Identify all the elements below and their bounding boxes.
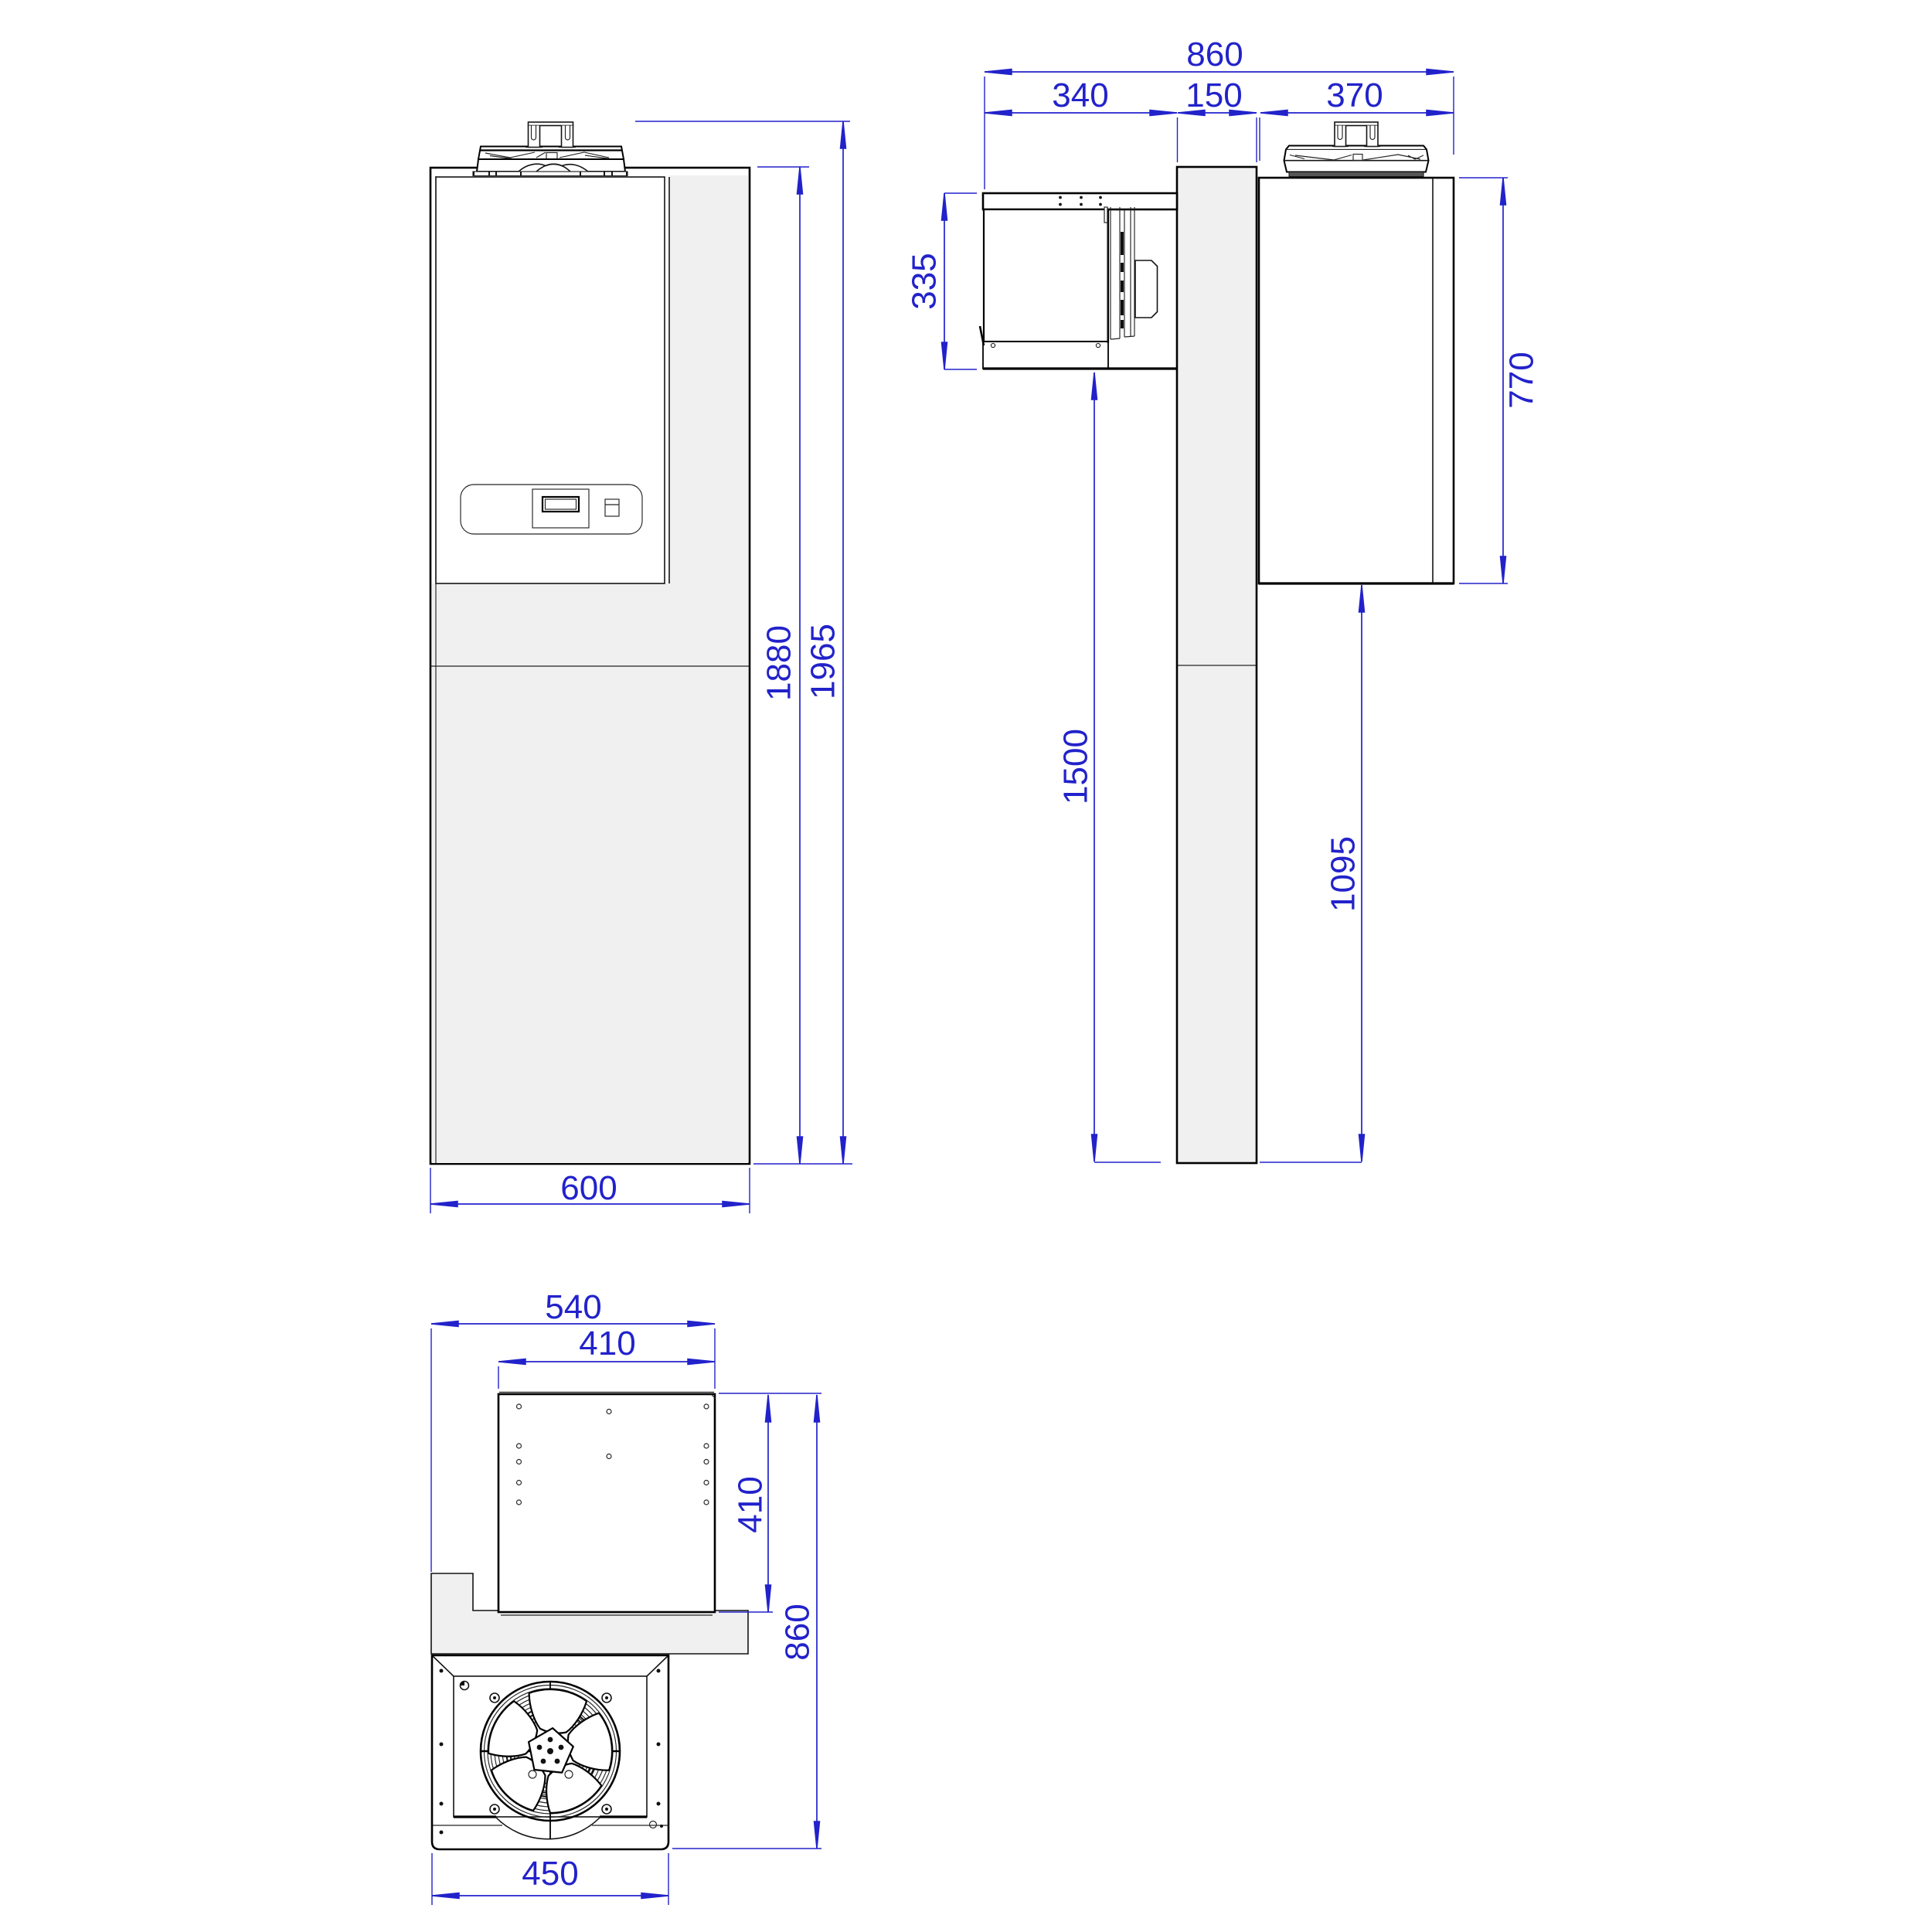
svg-text:450: 450 [522, 1855, 578, 1893]
svg-text:600: 600 [560, 1169, 617, 1207]
svg-text:335: 335 [906, 253, 944, 309]
svg-text:1965: 1965 [804, 624, 842, 699]
svg-text:410: 410 [579, 1325, 635, 1362]
svg-text:340: 340 [1052, 77, 1108, 114]
svg-text:1095: 1095 [1325, 836, 1362, 912]
svg-text:1500: 1500 [1057, 729, 1095, 804]
svg-text:410: 410 [732, 1476, 770, 1532]
svg-text:860: 860 [1186, 36, 1243, 73]
svg-text:770: 770 [1503, 352, 1541, 408]
svg-text:540: 540 [545, 1288, 601, 1326]
svg-text:860: 860 [779, 1604, 817, 1660]
svg-text:1880: 1880 [760, 625, 798, 701]
svg-text:370: 370 [1326, 77, 1383, 114]
svg-text:150: 150 [1185, 77, 1242, 114]
